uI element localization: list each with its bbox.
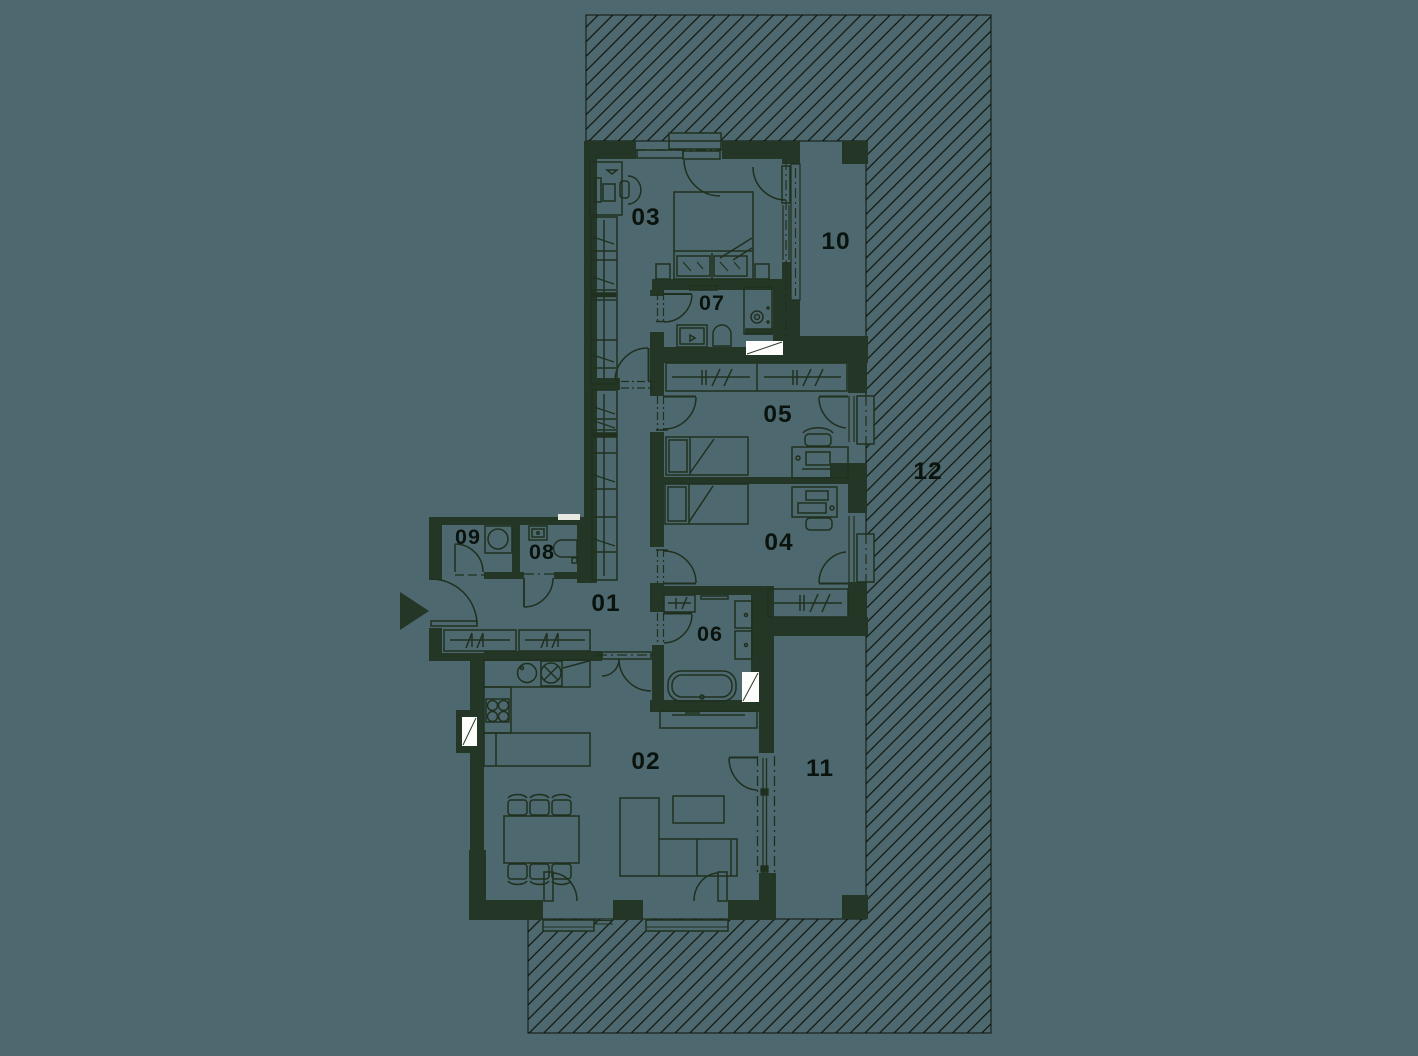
svg-text:10: 10 — [821, 228, 850, 255]
svg-text:03: 03 — [631, 204, 660, 231]
svg-text:01: 01 — [591, 590, 620, 617]
svg-text:12: 12 — [913, 458, 942, 485]
svg-text:09: 09 — [455, 525, 481, 549]
svg-text:08: 08 — [529, 540, 555, 564]
svg-text:07: 07 — [699, 291, 725, 315]
svg-text:05: 05 — [763, 401, 792, 428]
svg-text:02: 02 — [631, 748, 660, 775]
svg-text:04: 04 — [764, 529, 793, 556]
svg-text:06: 06 — [697, 622, 723, 646]
svg-text:11: 11 — [806, 755, 834, 782]
